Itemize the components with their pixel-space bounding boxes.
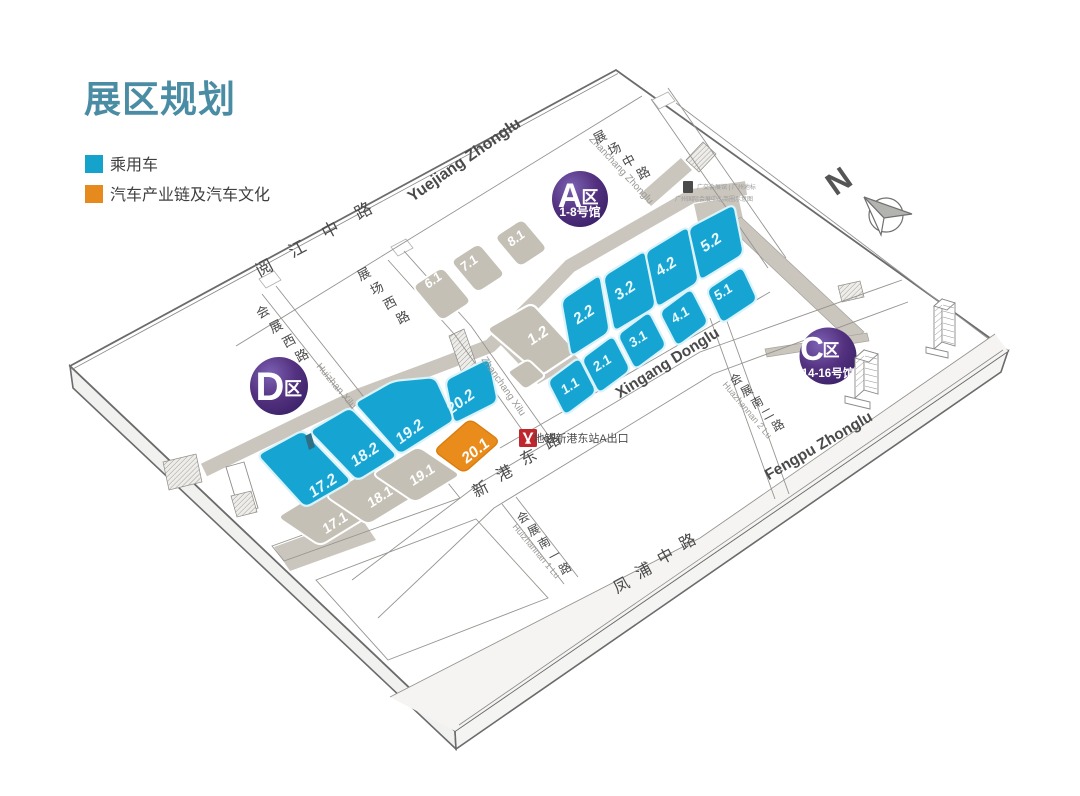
- svg-text:区: 区: [823, 341, 840, 360]
- svg-text:展区规划: 展区规划: [84, 79, 236, 120]
- svg-text:C: C: [800, 330, 824, 367]
- svg-text:乘用车: 乘用车: [110, 156, 158, 174]
- svg-text:N: N: [819, 160, 859, 203]
- svg-text:地铁新港东站A出口: 地铁新港东站A出口: [533, 431, 628, 445]
- svg-text:广交会展馆 | 广州地标: 广交会展馆 | 广州地标: [697, 183, 756, 191]
- svg-text:D: D: [256, 365, 285, 409]
- svg-text:14-16号馆: 14-16号馆: [802, 366, 855, 380]
- svg-text:1-8号馆: 1-8号馆: [559, 204, 600, 219]
- svg-text:汽车产业链及汽车文化: 汽车产业链及汽车文化: [110, 186, 270, 204]
- svg-text:广州国际会展中心商圈示意图: 广州国际会展中心商圈示意图: [675, 195, 753, 203]
- svg-text:区: 区: [284, 379, 302, 399]
